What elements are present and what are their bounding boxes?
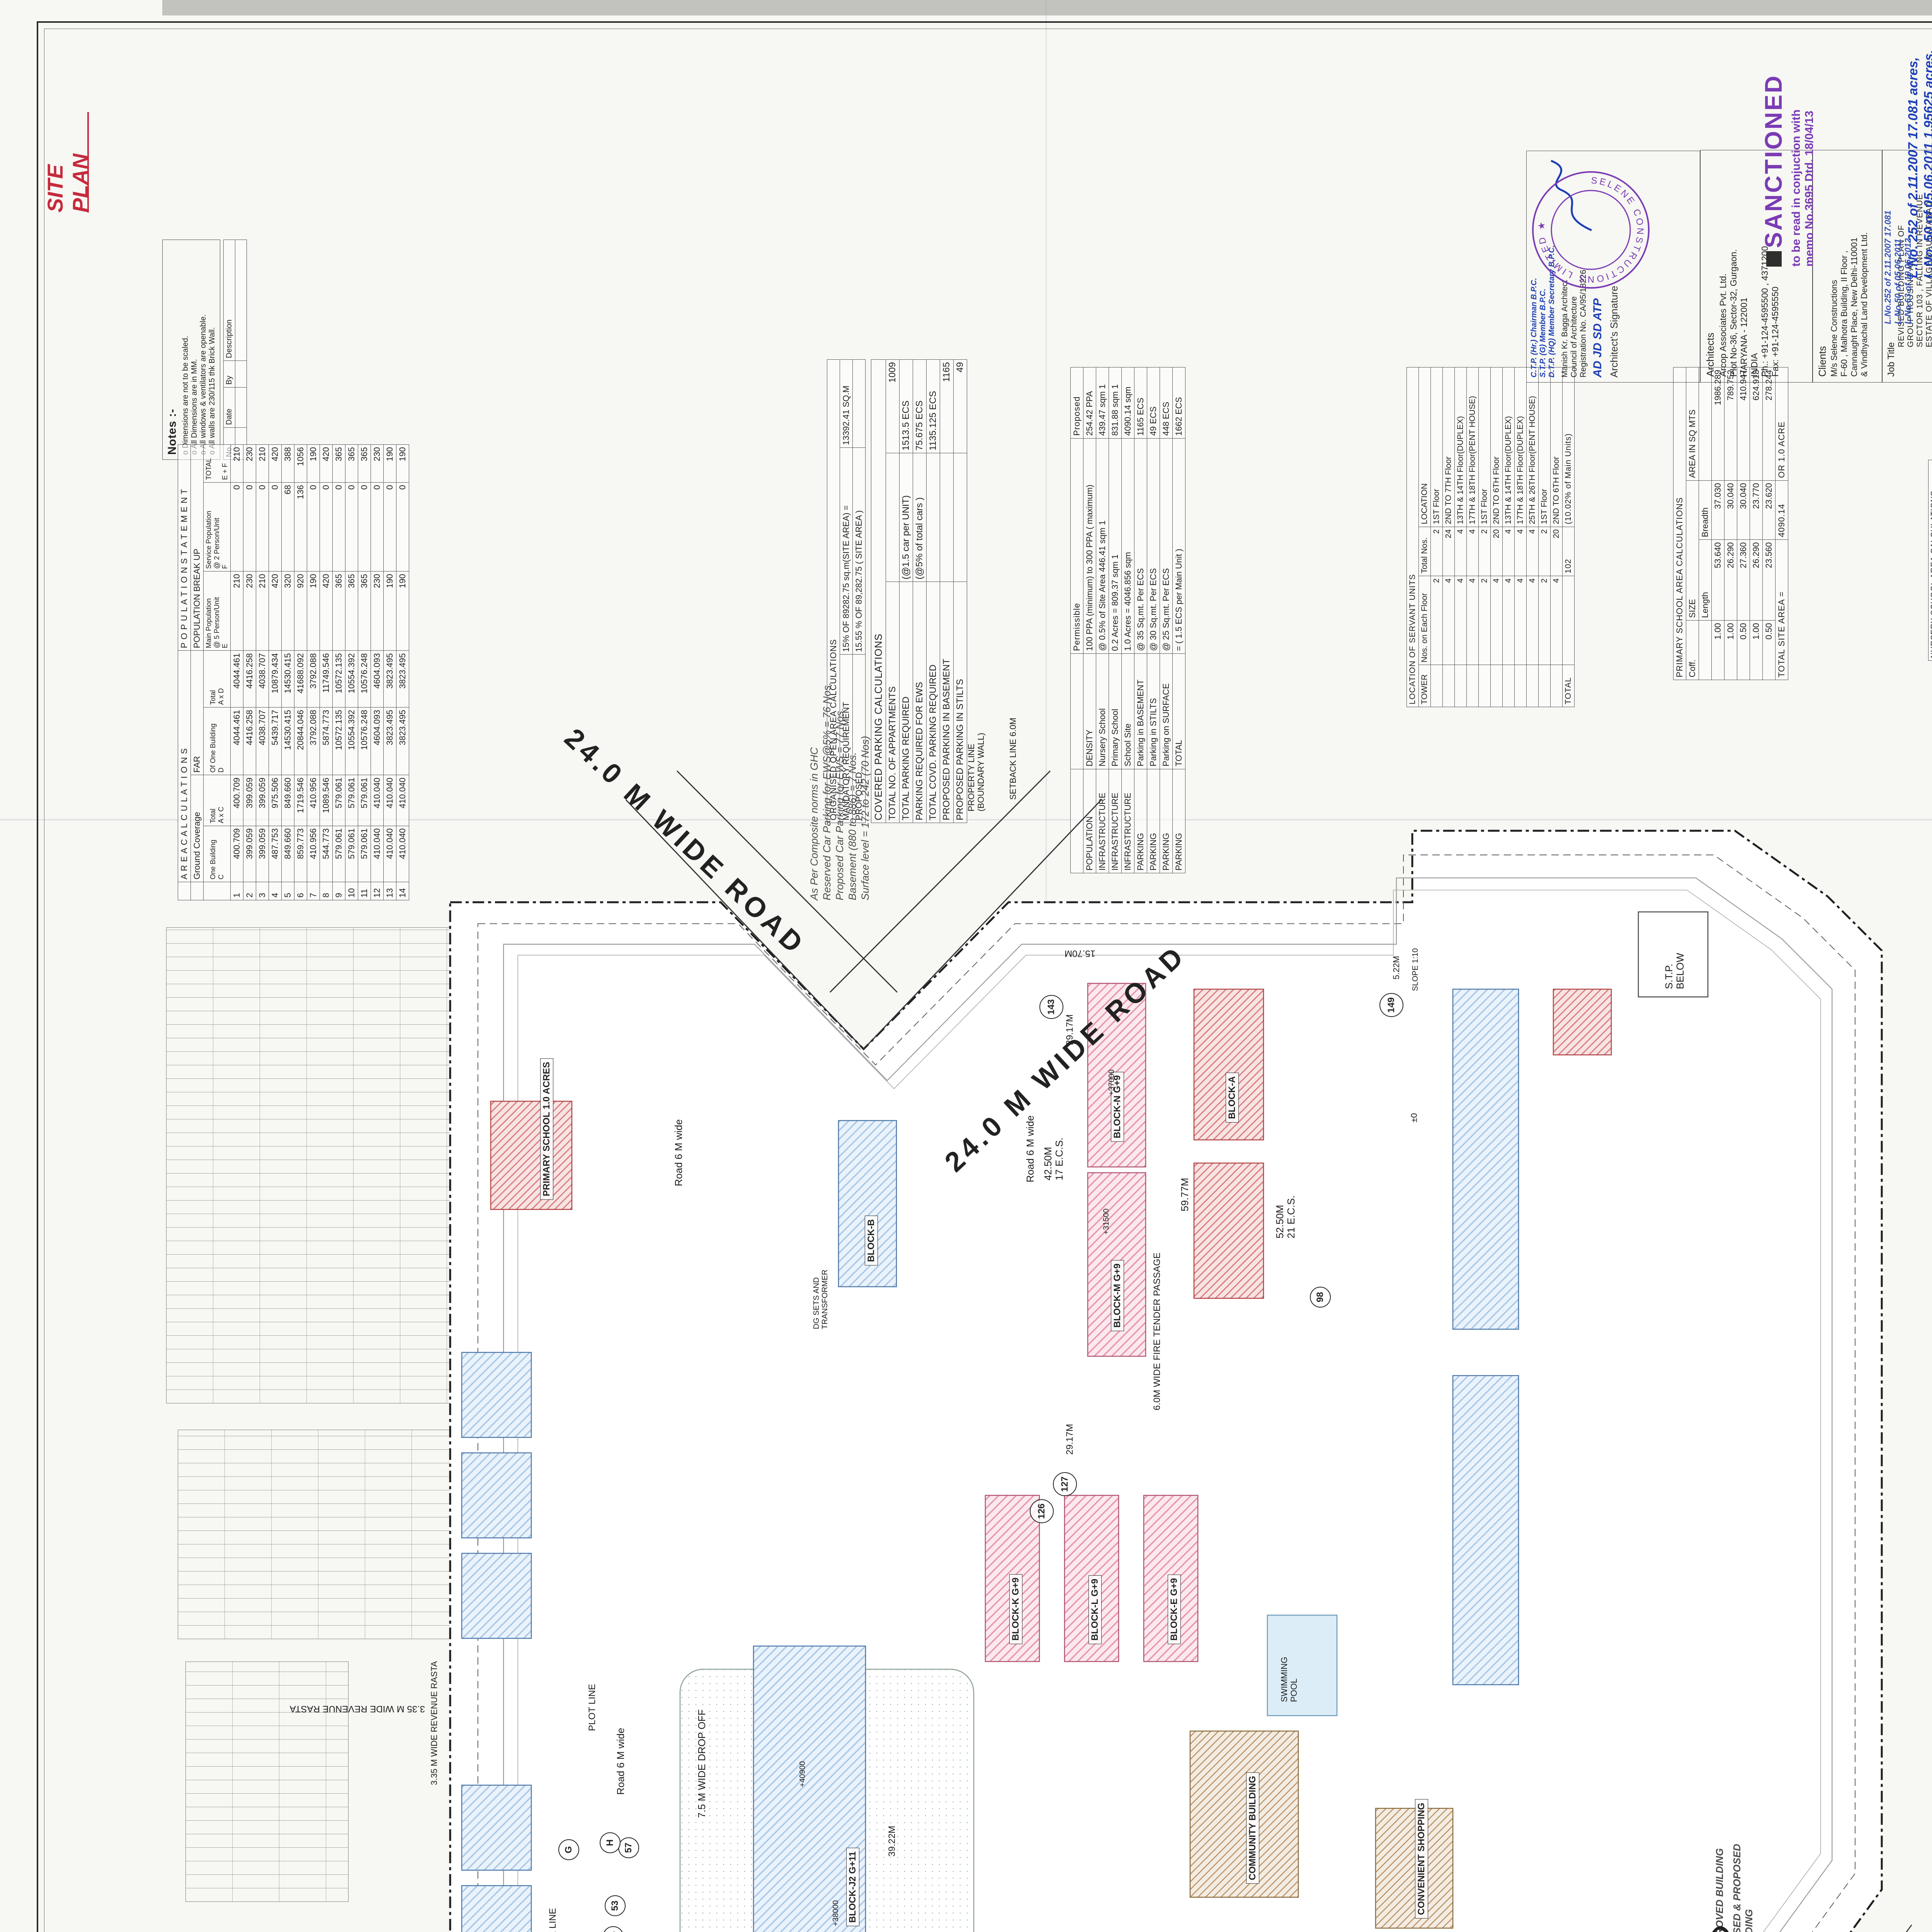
plan-block-community-building [1190,1731,1298,1897]
block-label: BLOCK-E G+9 [1168,1575,1181,1644]
col-area: AREA IN SQ MTS [1686,367,1699,481]
school-total-note: OR 1.0 ACRE [1776,367,1788,481]
table-row: 1.0053.64037.0301986.289 [1712,367,1725,680]
plot-marker-127: 127 [1053,1472,1077,1496]
table-row: 221ST Floor [1431,367,1443,707]
plan-label: SETBACK LINE 6.0M [1009,718,1018,800]
plan-label: Road 6 M wide [615,1728,626,1795]
school-total-value: 4090.14 [1776,480,1788,539]
table-row: 0.5027.36030.040410.947 [1737,367,1750,680]
pencil-parking-note: As Per Composite norms in GHCReserved Ca… [808,653,908,900]
col-axd: Total A x D [204,651,231,707]
group-ground-coverage: Ground Coverage [191,775,204,882]
school-total-label: TOTAL SITE AREA = [1776,540,1788,680]
servant-units-title: LOCATION OF SERVANT UNITS [1407,367,1419,707]
text-line: o All windows & ventilators are openable… [199,245,208,455]
plan-block [1553,989,1611,1055]
table-row: 4413TH & 14TH Floor(DUPLEX) [1503,367,1515,707]
clients-lines: M/s Selene ConstructionsF-60 , Malhotra … [1829,156,1869,377]
rev-col-by: By [224,361,235,387]
col-f: Service Population @ 2 Person/Unit F [204,483,231,571]
plan-label: Road 6 M wide [673,1119,684,1186]
table-row: 1.0026.29030.040789.752 [1725,367,1737,680]
plan-block [462,1886,531,1932]
servant-units-table: LOCATION OF SERVANT UNITS TOWER Nos. on … [1406,367,1662,707]
plan-block [462,1453,531,1538]
population-title: P O P U L A T I O N S T A T E M E N T [178,445,191,651]
site-plan-handwritten-label: SITE PLAN [43,112,89,213]
svg-text:SELENE CONSTRUCTIONS LIMITED ★: SELENE CONSTRUCTIONS LIMITED ★ [1536,175,1645,285]
plan-label: 39.22M [887,1826,898,1857]
block-label: BLOCK-L G+9 [1088,1575,1102,1644]
table-row: 3399.059399.0594038.7074038.7072100210 [256,445,269,900]
scan-edge-top [162,0,1932,15]
plan-block [462,1352,531,1437]
plan-block [1453,1376,1519,1685]
plot-marker-149: 149 [1379,993,1403,1017]
architects-label: Architects [1704,156,1716,377]
memo-stamp-lines: to be read in conjuction withmemo No.369… [1790,43,1816,267]
text-line: L.No. 252 of 2.11.2007 17.081 acres, [1906,8,1921,278]
table-row: 4242ND TO 7TH Floor [1443,367,1455,707]
plan-block-convenient-shopping [1376,1808,1453,1928]
block-label: BLOCK-K G+9 [1009,1574,1022,1644]
servant-total-label: TOTAL [1563,665,1575,707]
plan-label: 59.77M [1179,1178,1190,1211]
col-tower: TOWER [1419,665,1431,707]
table-row: 4417TH & 18TH Floor(PENT HOUSE) [1467,367,1479,707]
plan-block [1267,1615,1337,1716]
plan-label: 29.17M [1065,1014,1075,1045]
table-row: 9579.061579.06110572.13510572.1353650365 [333,445,345,900]
notes-title: Notes :- [166,245,179,455]
table-row: 4487.753975.5065439.71710879.4344200420 [269,445,282,900]
hand-color-legend: APPROVED BUILDINGREVISED & PROPOSED BUIL… [1708,1801,1770,1932]
sanctioned-stamp: SANCTIONED to be read in conjuction with… [1760,43,1833,267]
plan-block [1194,1163,1264,1298]
plot-marker-126: 126 [1030,1499,1054,1523]
text-line: Reserved Car Parking for EWS@5% = 76 Nos… [821,653,833,900]
col-axc: Total A x C [204,775,231,826]
plan-block [1453,989,1519,1329]
servant-total-note: (10.02% of Main Units) [1563,367,1575,527]
plan-label: PROPERTY LINE (BOUNDARY WALL) [967,733,986,811]
text-line: o All Dimensions are in MM. [190,245,199,455]
text-line: HARYANA - 122001 [1739,156,1749,377]
plan-label: +31500 [1102,1209,1111,1235]
text-line: to be read in conjuction with [1790,43,1803,267]
text-line: Plot No-36, Sector-32, Gurgaon. [1728,156,1739,377]
table-row: 12410.040410.0404604.0934604.0932300230 [371,445,384,900]
plan-label: S.T.P. BELOW [1663,953,1686,989]
plot-marker-H: H [600,1832,621,1853]
table-row: 4417TH & 18TH Floor(DUPLEX) [1515,367,1527,707]
table-row: 1400.709400.7094044.4614044.4612100210 [231,445,243,900]
group-population-breakup: POPULATION BREAK UP [191,445,204,651]
plan-label: 6.0M WIDE FIRE TENDER PASSAGE [1152,1252,1163,1410]
plan-label: 42.50M 17 E.C.S. [1043,1138,1065,1180]
plan-label: ±0 [1410,1113,1419,1122]
acreage-note: L.No. 252 of 2.11.2007 17.081 acres,L.No… [1905,8,1932,278]
text-line: L.No. 50 of 05.06.2011 1.95625 acres, [1922,8,1932,278]
col-coff: Coff. [1686,621,1699,680]
hand-legend-item: REVISED & PROPOSED BUILDING [1731,1801,1755,1932]
text-line: As Per Composite norms in GHC [808,653,820,900]
col-proposed: Proposed [1071,367,1083,439]
table-row: 5849.660849.66014530.41514530.4153206838… [282,445,294,900]
table-row: 7410.956410.9563792.0883792.0881900190 [307,445,320,900]
plan-label: SWIMMING POOL [1280,1657,1299,1702]
servant-total-value: 102 [1563,527,1575,576]
plan-block [462,1553,531,1638]
col-length: Length [1699,540,1712,621]
text-line: F-60 , Malhotra Building, II Floor , [1839,156,1849,377]
text-line: L.No.252 of 2.11.2007 17.081 [1883,211,1893,324]
nursery-school-title: NURSERY SCHOOL AREA CALCULATIONS [1929,460,1932,661]
table-row: 10579.061579.06110554.39210554.392365036… [345,445,358,900]
plan-label: 5.22M [1392,956,1401,980]
selene-circular-stamp: SELENE CONSTRUCTIONS LIMITED ★ [1527,166,1655,294]
plan-label: PLOT LINE [587,1684,598,1731]
plan-label: 29.17M [1065,1424,1075,1455]
notes-items: o Dimensions are not to be scaled.o All … [181,245,217,455]
plan-block-primary-school [491,1101,572,1209]
table-row: 221ST Floor [1539,367,1551,707]
primary-school-table: PRIMARY SCHOOL AREA CALCULATIONS Coff. S… [1673,367,1928,680]
primary-school-rows: 1.0053.64037.0301986.2891.0026.29030.040… [1712,367,1776,680]
table-row: 221ST Floor [1479,367,1491,707]
block-label: BLOCK-J2 G+11 [846,1848,859,1926]
col-location: LOCATION [1419,367,1431,527]
nursery-school-table: NURSERY SCHOOL AREA CALCULATIONS Coff. L… [1928,460,1932,661]
col-permissible: Permissible [1071,438,1083,653]
table-row: 0.5023.56023.620278.244 [1763,367,1776,680]
plot-marker-143: 143 [1039,995,1063,1019]
plan-label: 7.5 M WIDE DROP OFF [696,1709,707,1818]
text-line: Cannaught Place, New Delhi-110001 [1849,156,1859,377]
rev-col-desc: Description [224,240,235,361]
plan-label: DG SETS AND TRANSFORMER [812,1270,830,1329]
block-label: CONVENIENT SHOPPING [1415,1799,1428,1918]
plan-label: 15.70M [1065,948,1095,958]
table-row: 4413TH & 14TH Floor(DUPLEX) [1455,367,1467,707]
col-d: Of One Building D [204,707,231,775]
scanned-site-plan-sheet: { "sheet": { "site_plan_label": "SITE PL… [0,0,1932,1932]
table-row: 1.0026.29023.770624.913 [1750,367,1763,680]
plan-label: +40900 [798,1761,807,1787]
revision-header-table: No. Date By Description [223,240,247,460]
table-row: 11579.061579.06110576.24810576.248365036… [358,445,371,900]
plot-marker-G: G [558,1839,579,1860]
table-row: 4202ND TO 6TH Floor [1551,367,1563,707]
hand-legend-item: APPROVED BUILDING [1712,1801,1727,1932]
text-line: memo No.3695 Dtd. 18/04/13 [1803,43,1816,267]
table-row: 2399.059399.0594416.2584416.2582300230 [243,445,256,900]
area-population-rows: 1400.709400.7094044.4614044.461210021023… [231,445,409,900]
plan-label: SLOPE 1:10 [1411,948,1420,991]
text-line: o All walls are 230/115 thk Brick Wall. [208,245,217,455]
plan-label: Road 6 M wide [1025,1116,1036,1182]
col-ef: TOTAL E + F [204,445,231,483]
col-breadth: Breadth [1699,480,1712,539]
plot-marker-57: 57 [618,1837,639,1858]
table-row: 6859.7731719.54620844.04641688.092920136… [294,445,307,900]
notes-top-left: Notes :- o Dimensions are not to be scal… [162,240,290,460]
col-size: SIZE [1686,480,1699,620]
table-row: 4425TH & 26TH Floor(PENT HOUSE) [1527,367,1539,707]
area-calc-title: A R E A C A L C U L A T I O N S [178,651,191,882]
servant-units-rows: 221ST Floor4242ND TO 7TH Floor4413TH & 1… [1431,367,1563,707]
plan-label: SETBACK LINE [548,1908,558,1932]
text-line: Proposed Car Parking for EWS = 77 Nos. [834,653,846,900]
plot-marker-53: 53 [605,1895,626,1916]
plot-marker-98: 98 [1310,1287,1331,1308]
plan-label: 3.35 M WIDE REVENUE RASTA [430,1661,439,1785]
text-line: INDIA [1749,156,1760,377]
dense-table-block [185,1662,349,1902]
block-label: PRIMARY SCHOOL 1.0 ACRES [540,1058,553,1200]
text-line: Arcop Associates Pvt. Ltd. [1718,156,1728,377]
plan-label: 52.50M 21 E.C.S. [1274,1196,1297,1238]
col-c: One Building C [204,826,231,882]
stamp-box-mark [1766,251,1782,267]
group-far: FAR [191,651,204,775]
plan-block [462,1785,531,1870]
block-label: BLOCK-A [1226,1073,1239,1122]
text-line: o Dimensions are not to be scaled. [181,245,190,455]
plan-label: +37000 [1107,1070,1116,1095]
text-line: & Vindhyachal Land Development Ltd. [1859,156,1869,377]
text-line: L.No.50 of 05.06.2011 [1893,211,1903,324]
block-label: BLOCK-B [865,1216,878,1265]
table-row: 8544.7731089.5465874.77311749.5464200420 [320,445,333,900]
table-row: 4202ND TO 6TH Floor [1491,367,1503,707]
text-line: Surface level = 172 to 242 (70 Nos) [859,653,871,900]
rev-col-date: Date [224,387,235,427]
text-line: Basement (880 to 886) = 7 Nos. [847,653,859,900]
block-label: BLOCK-M G+9 [1111,1260,1124,1331]
plan-label: +38000 [832,1900,840,1926]
col-total-nos: Total Nos. [1419,527,1431,576]
block-label: COMMUNITY BUILDING [1246,1772,1259,1884]
primary-school-title: PRIMARY SCHOOL AREA CALCULATIONS [1673,367,1686,680]
col-e: Main Population @ 5 Person/Unit E [204,571,231,651]
col-each-floor: Nos. on Each Floor [1419,576,1431,665]
plan-label: 3.35 M WIDE REVENUE RASTA [290,1703,425,1714]
